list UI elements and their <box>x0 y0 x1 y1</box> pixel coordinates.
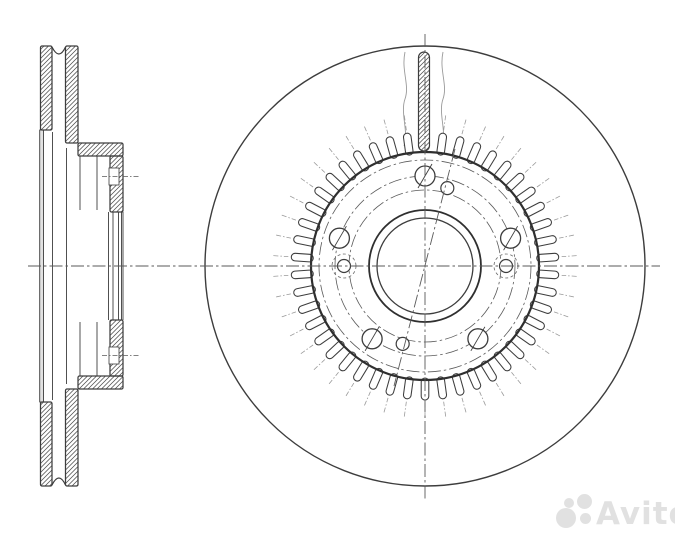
avito-logo-text: Avito <box>596 496 675 532</box>
brake-disc-technical-drawing <box>0 0 675 540</box>
brake-disc-product-image: abcp Avito <box>0 0 675 540</box>
vent-slot-section <box>419 52 430 151</box>
avito-logo-icon <box>552 492 596 532</box>
